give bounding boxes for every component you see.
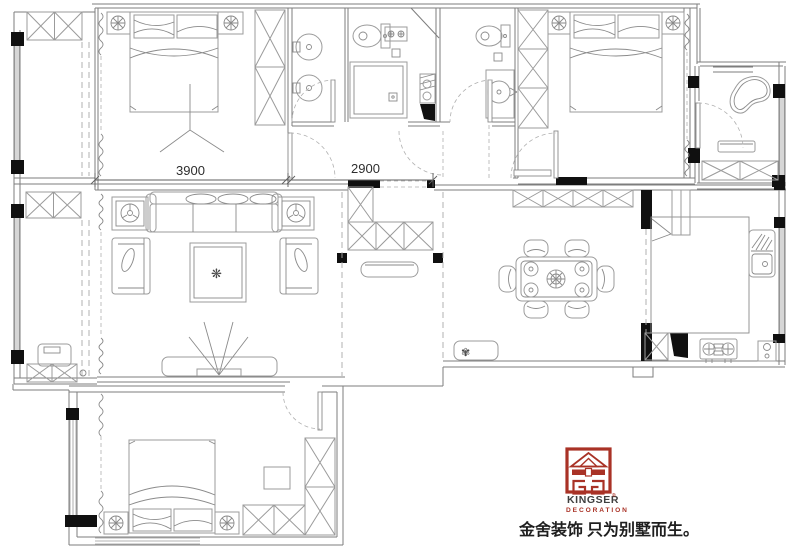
floor-plan-page: ❋: [0, 0, 800, 557]
bench-icon: [718, 141, 755, 152]
bedroom-3: [99, 394, 335, 535]
cabinet-icon: [243, 505, 305, 535]
wardrobe-icon: [255, 10, 285, 125]
plant-stand-icon: ✾: [454, 341, 498, 360]
armchair-icon: [112, 238, 318, 294]
dining-room: ✾: [454, 190, 633, 360]
floor-plan-drawing: ❋: [0, 0, 800, 557]
bedroom-2: [514, 10, 689, 176]
bathroom-2: [476, 25, 517, 118]
laundry-unit-icon: [420, 74, 435, 103]
structural-columns: [11, 32, 785, 527]
washbasin-icon: [293, 34, 322, 101]
tv-cabinet-icon: [162, 322, 277, 376]
double-bed-icon: [130, 12, 218, 112]
doors: [283, 80, 743, 430]
dimension-2900: 2900: [351, 161, 380, 176]
toilet-icon: [476, 25, 510, 47]
toilet-icon: [353, 24, 390, 48]
brand-logo: KINGSER ® DECORATION 金舍装饰 只为别墅而生。: [518, 449, 699, 539]
wardrobe-icon: [305, 438, 335, 535]
living-room: ❋: [99, 192, 318, 376]
cabinet-icon: [27, 364, 86, 382]
shower-tray-icon: [350, 62, 407, 118]
fridge-icon: [652, 190, 690, 241]
bathtub-icon: [730, 77, 770, 113]
cabinet-icon: [702, 161, 778, 180]
rug-flower-icon: ❋: [211, 267, 222, 282]
vanity-icon: [385, 27, 407, 41]
rug-icon: ❋: [190, 243, 246, 302]
plant-icon: ✾: [461, 346, 470, 359]
cabinet-icon: [26, 192, 81, 218]
desk-icon: [264, 467, 290, 489]
shoe-cabinet-icon: [348, 187, 433, 250]
door-icon: [283, 80, 743, 430]
dimension-chain: 3900 2900: [91, 161, 437, 187]
washing-machine-icon: [38, 344, 71, 366]
balcony-top-left: [27, 12, 89, 176]
dimension-3900: 3900: [176, 163, 205, 178]
lamp-icon: [552, 16, 680, 30]
brand-registered-mark: ®: [612, 492, 616, 499]
cabinet-icon: [27, 12, 82, 40]
kitchen-sink-icon: [749, 230, 775, 277]
double-bed-icon: [129, 440, 215, 533]
kitchen: [645, 190, 776, 363]
bedroom-master: [99, 10, 285, 176]
nightstand-icon: [107, 12, 243, 34]
brand-tagline: 金舍装饰 只为别墅而生。: [518, 520, 699, 539]
double-bed-icon: [570, 12, 662, 112]
stove-icon: [700, 339, 737, 363]
water-purifier-icon: [758, 341, 776, 361]
entry-hall: [342, 181, 443, 376]
window-icon: [15, 46, 784, 544]
nightstand-icon: [548, 12, 684, 34]
wardrobe-icon: [518, 10, 548, 128]
leisure-room: [702, 77, 778, 180]
table-lamp-icon: [121, 204, 305, 222]
balcony-living: [26, 192, 89, 382]
sideboard-icon: [513, 190, 633, 207]
sofa-icon: [146, 192, 282, 232]
bench-icon: [361, 262, 418, 277]
dining-table-icon: [516, 257, 597, 301]
brand-subtitle: DECORATION: [566, 507, 629, 514]
